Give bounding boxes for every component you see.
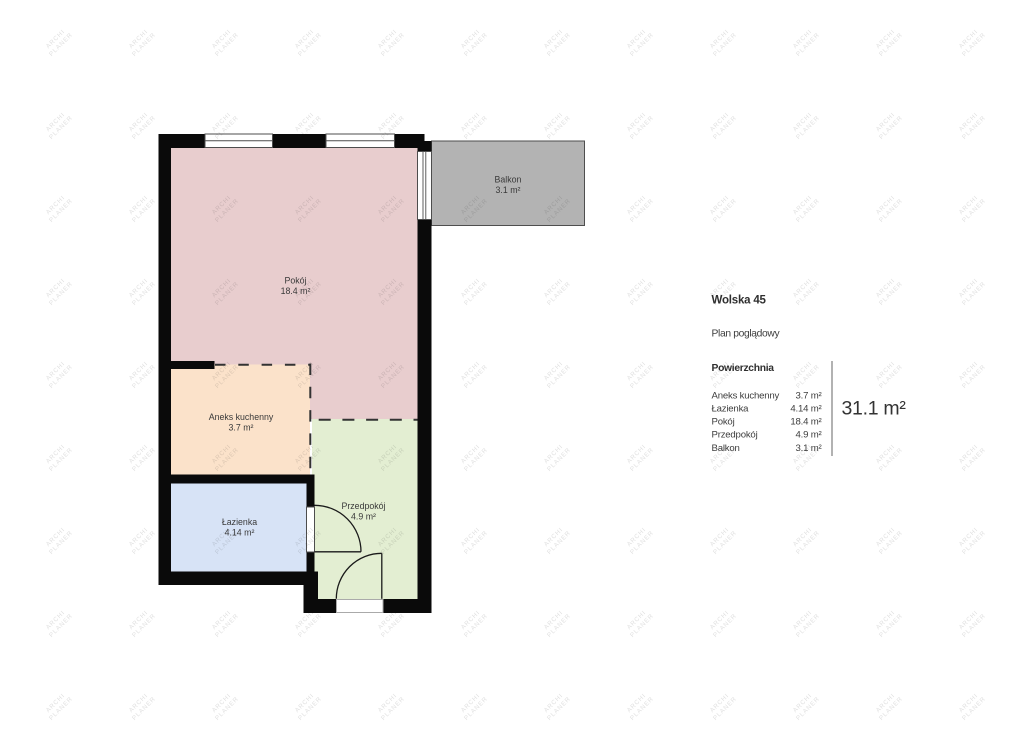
svg-text:Plan poglądowy: Plan poglądowy [712, 329, 781, 340]
svg-text:Łazienka: Łazienka [712, 404, 750, 415]
svg-text:Aneks kuchenny: Aneks kuchenny [209, 412, 274, 422]
svg-text:3.1 m²: 3.1 m² [496, 185, 521, 195]
svg-text:3.7 m²: 3.7 m² [796, 390, 823, 401]
svg-text:4.14 m²: 4.14 m² [790, 404, 822, 415]
svg-text:Łazienka: Łazienka [222, 517, 257, 527]
svg-text:31.1 m²: 31.1 m² [842, 398, 907, 420]
svg-text:4.9 m²: 4.9 m² [351, 512, 376, 522]
svg-text:3.7 m²: 3.7 m² [229, 423, 254, 433]
svg-text:4.9 m²: 4.9 m² [796, 430, 823, 441]
svg-text:Pokój: Pokój [712, 417, 735, 428]
svg-text:Balkon: Balkon [495, 175, 522, 185]
svg-text:Przedpokój: Przedpokój [712, 430, 758, 441]
svg-text:Aneks kuchenny: Aneks kuchenny [712, 390, 780, 401]
svg-text:18.4 m²: 18.4 m² [790, 417, 822, 428]
svg-text:Przedpokój: Przedpokój [341, 501, 385, 511]
